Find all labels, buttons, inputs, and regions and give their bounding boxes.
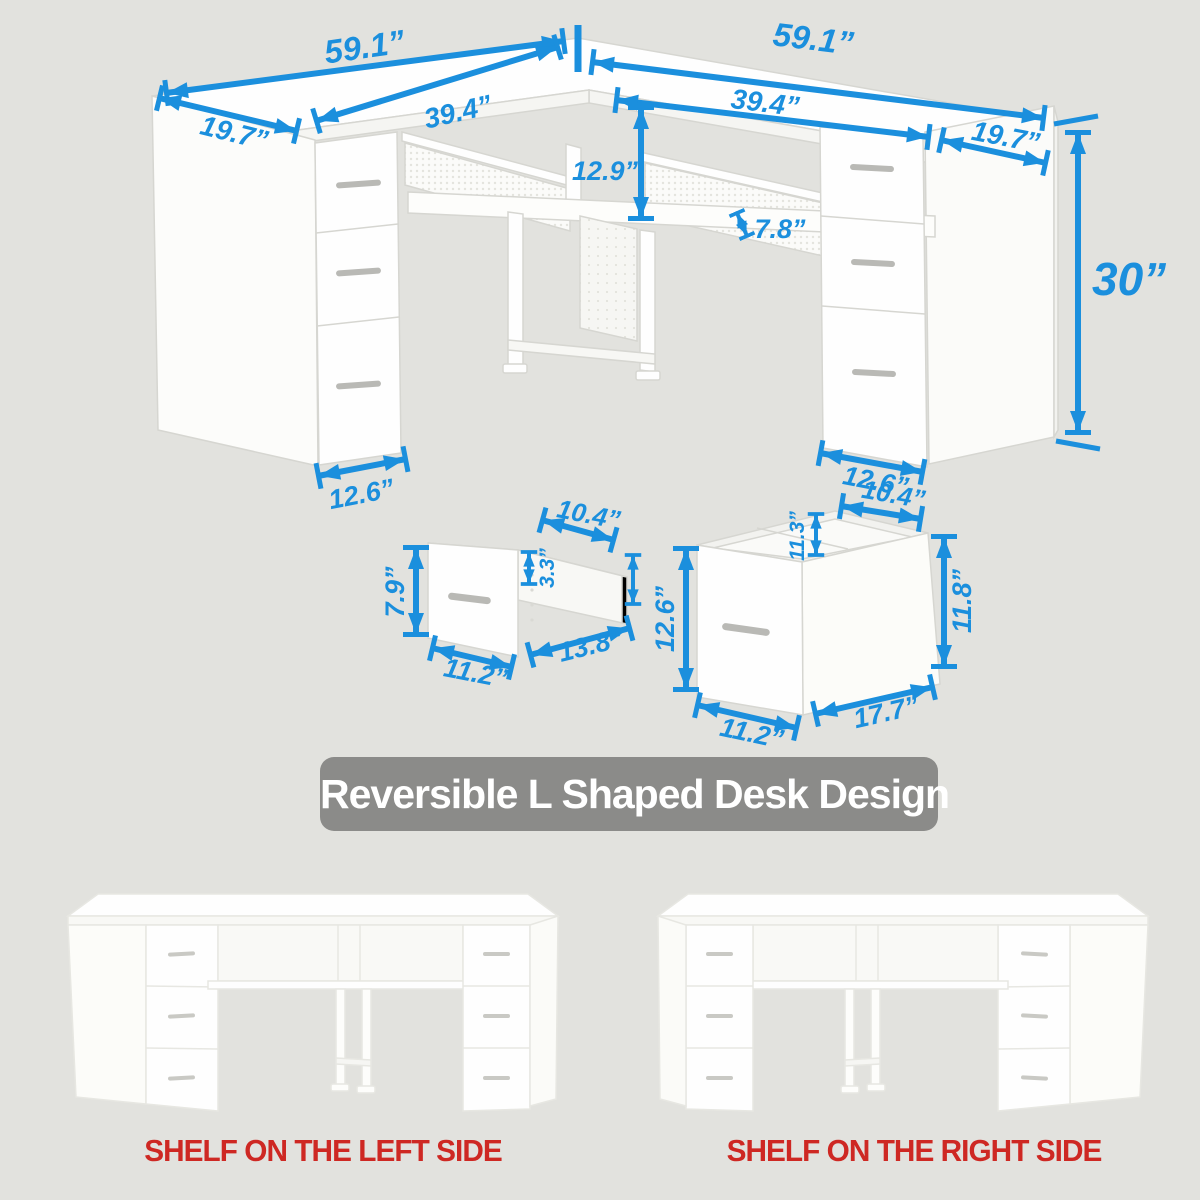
desk-shelf-left-image (68, 894, 558, 1111)
banner-title: Reversible L Shaped Desk Design (320, 757, 938, 831)
label-fd-left-height: 12.6” (650, 585, 680, 652)
label-shelf-thickness: 7.8” (754, 214, 806, 244)
variant-images (0, 860, 1200, 1150)
label-desk-height: 30” (1092, 253, 1166, 305)
file-drawer-drawing (697, 511, 940, 715)
dimension-diagram: 59.1” 59.1” 19.7” 39.4” 39.4” 19.7” 12.9… (0, 0, 1200, 752)
left-pedestal (315, 132, 401, 465)
label-fd-right-height: 11.8” (947, 568, 977, 633)
product-image: 59.1” 59.1” 19.7” 39.4” 39.4” 19.7” 12.9… (0, 0, 1200, 1200)
desk-left-end-panel (152, 96, 318, 466)
label-sd-depth: 13.8” (555, 623, 627, 668)
pegboard-panel (580, 216, 637, 341)
label-left-ped-width: 12.6” (326, 473, 397, 515)
label-fd-width: 11.2” (717, 712, 786, 752)
label-fd-inner: 11.3” (786, 511, 809, 561)
caption-shelf-right: SHELF ON THE RIGHT SIDE (626, 1133, 1200, 1169)
label-sd-height: 7.9” (380, 566, 410, 618)
right-pedestal (820, 127, 927, 467)
label-riser-height: 12.9” (572, 156, 639, 186)
caption-shelf-left: SHELF ON THE LEFT SIDE (35, 1133, 611, 1169)
label-sd-inner: 3.3” (536, 548, 559, 588)
label-top-right-width: 59.1” (771, 15, 856, 62)
desk-shelf-right-image (658, 894, 1148, 1111)
label-sd-width: 11.2” (441, 652, 510, 694)
